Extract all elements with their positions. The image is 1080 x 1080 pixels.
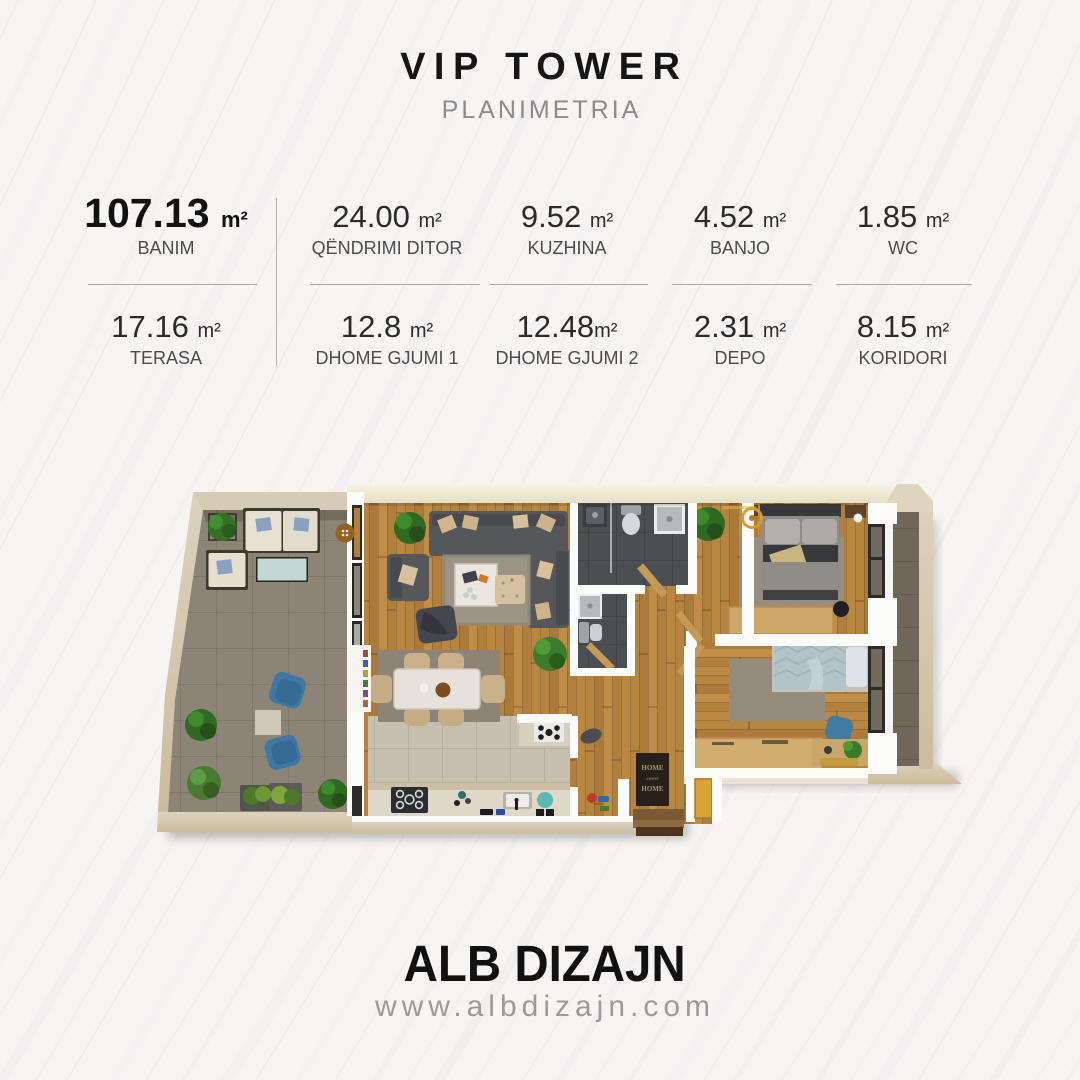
svg-text:HOME: HOME: [641, 785, 663, 793]
svg-text:sweet: sweet: [646, 776, 659, 782]
svg-text:HOME: HOME: [641, 764, 663, 772]
